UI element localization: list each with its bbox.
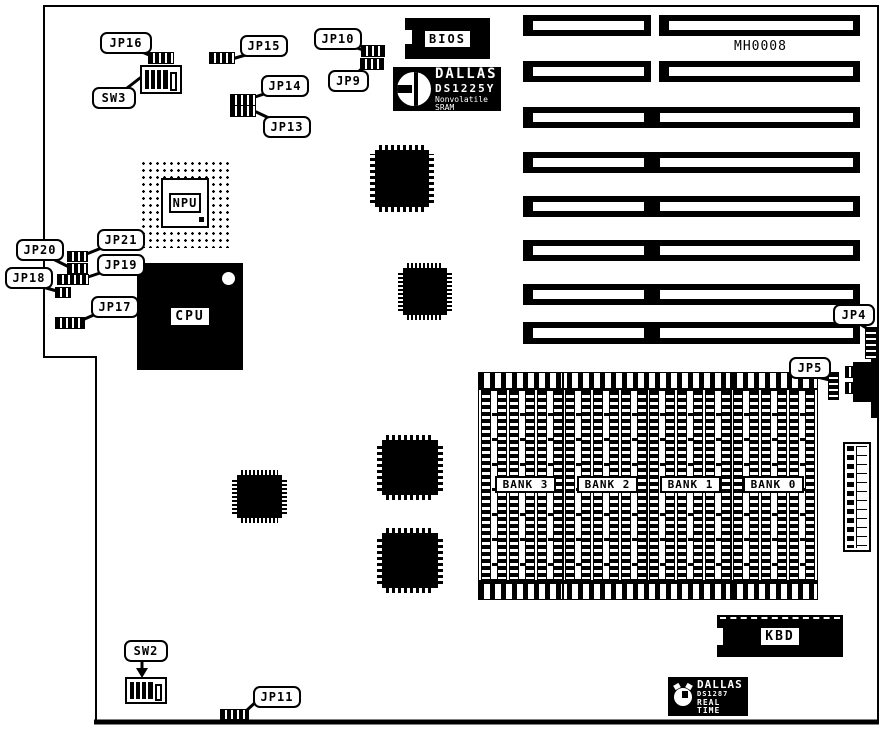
jp5-jumper — [828, 372, 839, 400]
expansion-slot-bar — [523, 107, 651, 128]
expansion-slot-bar — [650, 240, 860, 261]
dallas-nvram-brand: DALLAS — [435, 67, 498, 81]
callout-jp19: JP19 — [97, 254, 145, 276]
dallas-rtc-model: DS1287 — [697, 691, 744, 698]
memory-pin-row — [479, 373, 817, 390]
expansion-slot-bar — [650, 152, 860, 173]
expansion-slot-bar — [650, 196, 860, 217]
jp15-jumper — [209, 52, 235, 64]
jp17-jumper — [55, 317, 85, 329]
board-part-number: MH0008 — [734, 39, 787, 54]
din-connector-tab — [845, 382, 855, 394]
jp21-jumper — [67, 251, 88, 262]
expansion-slot-bar — [523, 152, 651, 173]
dallas-nvram-model: DS1225Y — [435, 83, 498, 94]
qfp-chip — [232, 470, 287, 523]
kbd-label: KBD — [761, 628, 798, 645]
jp9-jumper — [360, 58, 384, 70]
npu-socket-center: NPU — [161, 178, 209, 228]
callout-jp5: JP5 — [789, 357, 831, 379]
npu-socket: NPU — [138, 158, 230, 248]
kbd-connector: KBD — [717, 615, 843, 657]
jp16-jumper — [148, 52, 174, 64]
expansion-slot-bar — [650, 322, 860, 344]
callout-jp14: JP14 — [261, 75, 309, 97]
bank3-label: BANK 3 — [495, 476, 556, 493]
power-connector — [843, 442, 871, 552]
callout-jp4: JP4 — [833, 304, 875, 326]
alarm-clock-icon — [674, 688, 692, 706]
expansion-slot-bar — [659, 15, 860, 36]
callout-jp21: JP21 — [97, 229, 145, 251]
motherboard-diagram: MH0008 BIOS DALLAS DS1225Y Nonvolatile S… — [0, 0, 888, 731]
qfp-chip — [377, 435, 443, 500]
sw3-dip-switch — [140, 65, 182, 94]
callout-jp16: JP16 — [100, 32, 152, 54]
callout-jp20: JP20 — [16, 239, 64, 261]
callout-jp13: JP13 — [263, 116, 311, 138]
callout-sw3: SW3 — [92, 87, 136, 109]
bank0-label: BANK 0 — [743, 476, 804, 493]
expansion-slot-bar — [523, 240, 651, 261]
npu-pin1-dot — [199, 217, 204, 222]
dallas-rtc-desc: REAL TIME — [697, 699, 744, 715]
expansion-slot-bar — [650, 107, 860, 128]
callout-jp15: JP15 — [240, 35, 288, 57]
jp19-jumper — [57, 274, 89, 285]
dallas-nvram-desc: Nonvolatile SRAM — [435, 96, 498, 112]
jp4-jumper — [865, 327, 877, 359]
expansion-slot-bar — [523, 322, 651, 344]
jp10-jumper — [361, 45, 385, 57]
jp11-jumper — [220, 709, 249, 720]
jp20-jumper — [67, 263, 88, 274]
dallas-nvram-text: DALLAS DS1225Y Nonvolatile SRAM — [435, 67, 498, 112]
cpu-chip: CPU — [137, 263, 243, 370]
qfp-chip — [370, 145, 434, 212]
callout-sw2: SW2 — [124, 640, 168, 662]
callout-jp11: JP11 — [253, 686, 301, 708]
din-connector-tab — [845, 366, 855, 378]
qfp-chip — [377, 528, 443, 593]
qfp-chip — [398, 263, 452, 320]
expansion-slot-bar — [659, 61, 860, 82]
expansion-slot-bar — [523, 196, 651, 217]
dallas-rtc-text: DALLAS DS1287 REAL TIME — [697, 679, 744, 715]
bank-separator — [646, 373, 648, 599]
cpu-pin1-circle — [222, 272, 235, 285]
bank1-label: BANK 1 — [660, 476, 721, 493]
dallas-rtc-brand: DALLAS — [697, 679, 744, 690]
npu-label: NPU — [169, 193, 202, 213]
bank-separator — [730, 373, 732, 599]
callout-jp17: JP17 — [91, 296, 139, 318]
expansion-slot-bar — [523, 15, 651, 36]
bank2-label: BANK 2 — [577, 476, 638, 493]
bios-chip: BIOS — [405, 18, 490, 59]
dallas-ds1225y-chip: DALLAS DS1225Y Nonvolatile SRAM — [393, 67, 501, 111]
jp18-jumper — [55, 287, 71, 298]
expansion-slot-bar — [650, 284, 860, 305]
sw2-dip-switch — [125, 677, 167, 704]
memory-bank-block: BANK 3 BANK 2 BANK 1 BANK 0 — [478, 372, 818, 600]
callout-jp10: JP10 — [314, 28, 362, 50]
bank-separator — [562, 373, 564, 599]
expansion-slot-bar — [523, 284, 651, 305]
dallas-ds1287-chip: DALLAS DS1287 REAL TIME — [668, 677, 748, 716]
expansion-slot-bar — [523, 61, 651, 82]
cpu-label: CPU — [171, 308, 208, 325]
memory-pin-row — [479, 580, 817, 599]
jp13-jumper — [230, 105, 256, 117]
dallas-logo-icon — [397, 72, 431, 106]
bios-label: BIOS — [424, 30, 471, 48]
keyboard-din-connector — [853, 362, 872, 402]
callout-jp18: JP18 — [5, 267, 53, 289]
callout-jp9: JP9 — [328, 70, 369, 92]
